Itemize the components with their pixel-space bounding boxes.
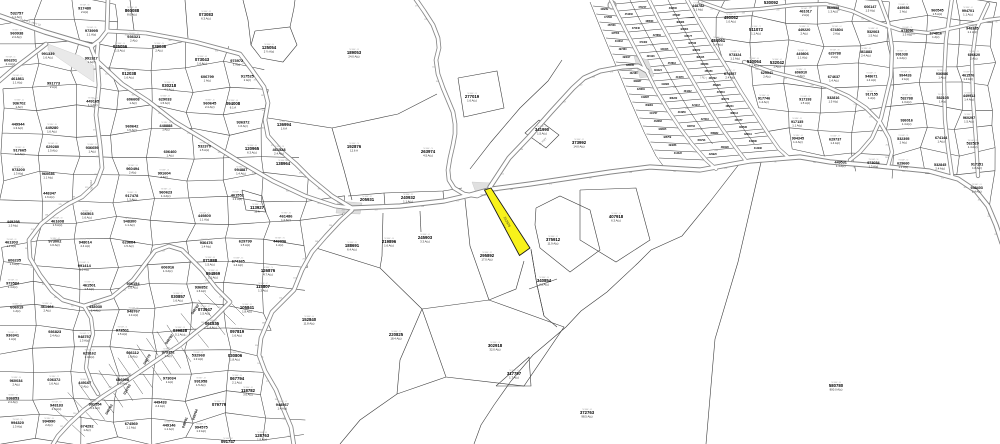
- svg-text:11.9 A(c): 11.9 A(c): [548, 242, 559, 246]
- svg-text:178: 178: [187, 133, 190, 135]
- svg-text:98: 98: [774, 161, 776, 163]
- svg-text:2.4 A(c): 2.4 A(c): [155, 404, 165, 408]
- svg-text:161: 161: [436, 81, 439, 83]
- svg-text:428411: 428411: [744, 133, 753, 136]
- svg-text:1.1 A(c): 1.1 A(c): [693, 8, 703, 12]
- svg-text:1.5 A(c): 1.5 A(c): [865, 9, 875, 13]
- svg-text:412422: 412422: [674, 152, 683, 155]
- svg-text:2 A(c): 2 A(c): [763, 75, 770, 79]
- svg-text:1.6 A(c): 1.6 A(c): [232, 334, 242, 338]
- svg-text:16 A: 16 A: [254, 210, 260, 214]
- svg-text:1.6 A(c): 1.6 A(c): [196, 289, 206, 293]
- svg-text:429605: 429605: [658, 128, 667, 131]
- svg-text:292: 292: [302, 258, 305, 260]
- svg-text:400: 400: [978, 200, 981, 202]
- svg-text:2.4 A(c): 2.4 A(c): [8, 400, 18, 404]
- svg-text:427216: 427216: [701, 118, 710, 121]
- svg-text:1 A(c): 1 A(c): [166, 380, 173, 384]
- svg-text:2 A(c): 2 A(c): [800, 32, 807, 36]
- svg-text:2.4 A(c): 2.4 A(c): [861, 54, 871, 58]
- svg-text:198: 198: [421, 206, 424, 208]
- svg-text:412296: 412296: [754, 147, 763, 150]
- svg-text:2.1 A(c): 2.1 A(c): [232, 381, 242, 385]
- svg-text:1.4 A(c): 1.4 A(c): [968, 145, 978, 149]
- svg-text:1.5 A(c): 1.5 A(c): [84, 287, 94, 291]
- svg-text:356: 356: [252, 172, 255, 174]
- svg-text:1.3 A(c): 1.3 A(c): [13, 425, 23, 429]
- svg-text:2 A(c): 2 A(c): [802, 13, 809, 17]
- svg-text:451636: 451636: [625, 13, 634, 16]
- svg-text:1.1 A(c): 1.1 A(c): [967, 30, 977, 34]
- svg-text:444956: 444956: [678, 111, 687, 114]
- svg-text:441005: 441005: [660, 48, 669, 51]
- svg-text:229: 229: [811, 85, 814, 87]
- svg-text:1.6 A(c): 1.6 A(c): [384, 244, 394, 248]
- svg-text:1.3 A(c): 1.3 A(c): [902, 32, 912, 36]
- svg-text:420126: 420126: [647, 55, 656, 58]
- svg-text:2 A(c): 2 A(c): [902, 77, 909, 81]
- svg-text:2 A(c): 2 A(c): [129, 170, 136, 174]
- svg-text:212: 212: [941, 177, 944, 179]
- svg-text:6.1 A: 6.1 A: [230, 106, 237, 110]
- svg-text:353: 353: [94, 174, 97, 176]
- svg-text:1.5 A(c): 1.5 A(c): [48, 149, 58, 153]
- svg-text:1.6 A(c): 1.6 A(c): [118, 381, 128, 385]
- svg-text:1.4 A(c): 1.4 A(c): [897, 56, 907, 60]
- svg-text:6.3 A(c): 6.3 A(c): [201, 17, 211, 21]
- svg-text:079779: 079779: [212, 402, 227, 407]
- svg-text:279: 279: [415, 5, 418, 7]
- svg-text:421804: 421804: [680, 28, 689, 31]
- svg-text:441577: 441577: [735, 119, 744, 122]
- svg-text:1 A(c): 1 A(c): [129, 101, 136, 105]
- svg-text:483083: 483083: [676, 21, 685, 24]
- svg-text:1.3 A(c): 1.3 A(c): [902, 100, 912, 104]
- svg-text:2 A(c): 2 A(c): [50, 85, 57, 89]
- svg-text:3.3 A(c): 3.3 A(c): [420, 240, 430, 244]
- svg-text:379: 379: [85, 187, 88, 189]
- svg-text:459150: 459150: [705, 70, 714, 73]
- svg-text:307: 307: [589, 177, 592, 179]
- svg-text:1.3 A(c): 1.3 A(c): [90, 406, 100, 410]
- svg-text:1.4 A(c): 1.4 A(c): [201, 244, 211, 248]
- svg-text:2.4 A(c): 2.4 A(c): [205, 105, 215, 109]
- svg-text:217: 217: [563, 101, 566, 103]
- svg-text:458882: 458882: [710, 132, 719, 135]
- svg-text:PINE RD: PINE RD: [89, 180, 94, 191]
- svg-text:1.1 A(c): 1.1 A(c): [125, 223, 135, 227]
- svg-text:411884: 411884: [661, 83, 670, 86]
- svg-text:1.4 A(c): 1.4 A(c): [759, 100, 769, 104]
- svg-text:1.5 A(c): 1.5 A(c): [127, 128, 137, 132]
- svg-text:1.1 A(c): 1.1 A(c): [730, 56, 740, 60]
- svg-text:112: 112: [184, 335, 187, 337]
- svg-text:83: 83: [862, 19, 864, 21]
- svg-text:1.5 A(c): 1.5 A(c): [800, 101, 810, 105]
- svg-text:200: 200: [776, 9, 779, 11]
- svg-text:1 A(c): 1 A(c): [868, 96, 875, 100]
- svg-text:414707: 414707: [649, 112, 658, 115]
- svg-text:1.3 A(c): 1.3 A(c): [193, 357, 203, 361]
- svg-text:256: 256: [109, 387, 112, 389]
- svg-text:1.4 A(c): 1.4 A(c): [236, 172, 246, 176]
- svg-text:1.6 A(c): 1.6 A(c): [238, 124, 248, 128]
- svg-text:414076: 414076: [676, 76, 685, 79]
- svg-text:1.5 A(c): 1.5 A(c): [118, 332, 128, 336]
- svg-text:338: 338: [742, 12, 745, 14]
- svg-text:1 A(c): 1 A(c): [162, 128, 169, 132]
- svg-text:1.6 A(c): 1.6 A(c): [124, 76, 134, 80]
- svg-text:86: 86: [318, 189, 320, 191]
- svg-text:1.4 A(c): 1.4 A(c): [829, 78, 839, 82]
- svg-text:420081: 420081: [637, 88, 646, 91]
- svg-text:1.4 A(c): 1.4 A(c): [233, 263, 243, 267]
- svg-text:125: 125: [128, 374, 131, 376]
- svg-text:1 A(c): 1 A(c): [166, 154, 173, 158]
- svg-text:423872: 423872: [692, 49, 701, 52]
- svg-text:1 A(c): 1 A(c): [13, 309, 20, 313]
- svg-text:459961: 459961: [645, 104, 654, 107]
- svg-text:1.5 A(c): 1.5 A(c): [240, 243, 250, 247]
- svg-text:1.4 A(c): 1.4 A(c): [129, 313, 139, 317]
- svg-text:188: 188: [188, 261, 191, 263]
- svg-text:1.5 A(c): 1.5 A(c): [537, 132, 547, 136]
- svg-text:298: 298: [315, 241, 318, 243]
- svg-text:421217: 421217: [692, 104, 701, 107]
- svg-text:12.6 A: 12.6 A: [350, 149, 358, 153]
- svg-text:103: 103: [257, 363, 260, 365]
- svg-text:149: 149: [813, 162, 816, 164]
- svg-text:133: 133: [162, 251, 165, 253]
- svg-text:495702: 495702: [687, 125, 696, 128]
- svg-text:322: 322: [262, 110, 265, 112]
- svg-text:94: 94: [25, 248, 27, 250]
- svg-text:269: 269: [254, 80, 257, 82]
- svg-text:1 A(c): 1 A(c): [233, 62, 240, 66]
- svg-text:273: 273: [266, 381, 269, 383]
- svg-text:32.0 A(c): 32.0 A(c): [489, 348, 500, 352]
- svg-text:157: 157: [375, 209, 378, 211]
- svg-text:1.3 A(c): 1.3 A(c): [963, 77, 973, 81]
- svg-text:1.5 A(c): 1.5 A(c): [205, 263, 215, 267]
- svg-text:1.4 A(c): 1.4 A(c): [964, 98, 974, 102]
- svg-text:1.4 A(c): 1.4 A(c): [830, 141, 840, 145]
- svg-text:1.6 A(c): 1.6 A(c): [82, 216, 92, 220]
- svg-text:1.4 A(c): 1.4 A(c): [161, 194, 171, 198]
- svg-text:290: 290: [73, 413, 76, 415]
- svg-text:1.5 A(c): 1.5 A(c): [196, 383, 206, 387]
- svg-text:481770: 481770: [721, 98, 730, 101]
- svg-text:1.4 A(c): 1.4 A(c): [836, 164, 846, 168]
- svg-text:1 A(c): 1 A(c): [276, 243, 283, 247]
- svg-text:2 A(c): 2 A(c): [833, 32, 840, 36]
- svg-text:1.1 A(c): 1.1 A(c): [126, 426, 136, 430]
- svg-text:1.5 A(c): 1.5 A(c): [8, 223, 18, 227]
- svg-text:1.4 A(c): 1.4 A(c): [793, 140, 803, 144]
- svg-text:1 A(c): 1 A(c): [83, 428, 90, 432]
- svg-text:1.3 A(c): 1.3 A(c): [127, 198, 137, 202]
- svg-text:112: 112: [432, 67, 435, 69]
- svg-text:1.1 A(c): 1.1 A(c): [403, 200, 413, 204]
- svg-text:101: 101: [880, 131, 883, 133]
- svg-text:1 A(c): 1 A(c): [939, 99, 946, 103]
- svg-text:387: 387: [942, 32, 945, 34]
- svg-text:2.4 A(c): 2.4 A(c): [6, 62, 16, 66]
- svg-text:427869: 427869: [653, 34, 662, 37]
- svg-text:1 A(c): 1 A(c): [773, 65, 780, 69]
- svg-text:458325: 458325: [713, 84, 722, 87]
- svg-text:212: 212: [105, 74, 108, 76]
- svg-text:252: 252: [31, 229, 34, 231]
- svg-text:390: 390: [299, 172, 302, 174]
- svg-text:1.1 A(c): 1.1 A(c): [200, 218, 210, 222]
- svg-text:1.6 A(c): 1.6 A(c): [197, 62, 207, 66]
- svg-text:3.0 A(c): 3.0 A(c): [243, 393, 253, 397]
- svg-text:800.0 A(c): 800.0 A(c): [830, 388, 843, 392]
- svg-text:282: 282: [510, 189, 513, 191]
- svg-text:1.4 A(c): 1.4 A(c): [866, 78, 876, 82]
- svg-text:428252: 428252: [600, 8, 609, 11]
- svg-text:4.2 A(c): 4.2 A(c): [539, 283, 549, 287]
- svg-text:1.5 A(c): 1.5 A(c): [828, 100, 838, 104]
- svg-text:11.8 A(c): 11.8 A(c): [304, 322, 315, 326]
- svg-text:1.6 A(c): 1.6 A(c): [47, 129, 57, 133]
- svg-text:1.4 A(c): 1.4 A(c): [207, 326, 217, 330]
- svg-text:497360: 497360: [619, 48, 628, 51]
- svg-text:1 A(c): 1 A(c): [938, 75, 945, 79]
- svg-text:372: 372: [123, 290, 126, 292]
- svg-text:444480: 444480: [749, 140, 758, 143]
- svg-text:339: 339: [93, 69, 96, 71]
- svg-text:1.5 A(c): 1.5 A(c): [124, 244, 134, 248]
- svg-text:2.4 A(c): 2.4 A(c): [12, 35, 22, 39]
- svg-text:14.0 A(c): 14.0 A(c): [573, 145, 584, 149]
- svg-text:474727: 474727: [638, 6, 647, 9]
- svg-text:484536: 484536: [739, 126, 748, 129]
- svg-text:148: 148: [629, 172, 632, 174]
- svg-text:1.6 A: 1.6 A: [281, 127, 288, 131]
- svg-text:295: 295: [994, 234, 997, 236]
- svg-text:1.6 A(c): 1.6 A(c): [49, 381, 59, 385]
- svg-text:2 A(c): 2 A(c): [831, 55, 838, 59]
- svg-text:96: 96: [995, 21, 997, 23]
- svg-text:494345: 494345: [696, 56, 705, 59]
- svg-text:2.4 A(c): 2.4 A(c): [52, 407, 62, 411]
- svg-text:1.6 A(c): 1.6 A(c): [53, 223, 63, 227]
- svg-text:2 A(c): 2 A(c): [900, 10, 907, 14]
- svg-text:181: 181: [755, 69, 758, 71]
- svg-text:471582: 471582: [604, 16, 613, 19]
- svg-text:1.4 A(c): 1.4 A(c): [85, 355, 95, 359]
- svg-text:469987: 469987: [633, 80, 642, 83]
- svg-text:1.7 A(c): 1.7 A(c): [509, 376, 519, 380]
- svg-text:320: 320: [218, 152, 221, 154]
- svg-text:1 A(c): 1 A(c): [797, 74, 804, 78]
- svg-text:424546: 424546: [688, 42, 697, 45]
- svg-text:449792: 449792: [709, 77, 718, 80]
- svg-text:400: 400: [262, 128, 265, 130]
- svg-text:426165: 426165: [626, 64, 635, 67]
- svg-text:1 A(c): 1 A(c): [932, 35, 939, 39]
- svg-text:6.3 A(c): 6.3 A(c): [247, 151, 257, 155]
- svg-text:471362: 471362: [639, 41, 648, 44]
- svg-text:486244: 486244: [726, 105, 735, 108]
- svg-text:267: 267: [673, 171, 676, 173]
- svg-text:163: 163: [54, 297, 57, 299]
- svg-text:1.4 A(c): 1.4 A(c): [281, 218, 291, 222]
- svg-text:298: 298: [629, 69, 632, 71]
- svg-text:230: 230: [329, 225, 332, 227]
- svg-text:382: 382: [483, 195, 486, 197]
- svg-text:1.5 A(c): 1.5 A(c): [933, 12, 943, 16]
- svg-text:259: 259: [96, 156, 99, 158]
- svg-text:1.8 A(c): 1.8 A(c): [257, 438, 267, 442]
- svg-text:101: 101: [501, 173, 504, 175]
- svg-text:2.4 A(c): 2.4 A(c): [725, 76, 735, 80]
- svg-text:447553: 447553: [611, 32, 620, 35]
- svg-text:1.3 A(c): 1.3 A(c): [869, 164, 879, 168]
- svg-text:1.4 A(c): 1.4 A(c): [8, 285, 18, 289]
- svg-text:1.1 A(c): 1.1 A(c): [798, 56, 808, 60]
- svg-text:477937: 477937: [672, 14, 681, 17]
- svg-text:091747: 091747: [221, 439, 236, 444]
- svg-text:2 A(c): 2 A(c): [45, 423, 52, 427]
- svg-text:157: 157: [60, 426, 63, 428]
- svg-text:333: 333: [853, 166, 856, 168]
- svg-text:432180: 432180: [630, 72, 639, 75]
- svg-text:1.1 A(c): 1.1 A(c): [13, 80, 23, 84]
- svg-text:1.1 A(c): 1.1 A(c): [792, 123, 802, 127]
- svg-text:159: 159: [869, 116, 872, 118]
- svg-text:2.4 A(c): 2.4 A(c): [972, 190, 982, 194]
- svg-text:2 A(c): 2 A(c): [12, 382, 19, 386]
- svg-text:1.1 A(c): 1.1 A(c): [43, 176, 53, 180]
- svg-text:1.3 A(c): 1.3 A(c): [258, 289, 268, 293]
- svg-text:447177: 447177: [684, 35, 693, 38]
- svg-text:214: 214: [854, 104, 857, 106]
- svg-text:17.0 A(c): 17.0 A(c): [481, 258, 492, 262]
- svg-text:8.0 A(c): 8.0 A(c): [127, 13, 137, 17]
- svg-text:1.3 A(c): 1.3 A(c): [15, 152, 25, 156]
- svg-text:205931: 205931: [360, 197, 375, 202]
- svg-text:362: 362: [288, 436, 291, 438]
- svg-text:1.1 A(c): 1.1 A(c): [898, 165, 908, 169]
- svg-text:2.4 A(c): 2.4 A(c): [80, 244, 90, 248]
- svg-text:1.5 A(c): 1.5 A(c): [200, 312, 210, 316]
- svg-text:1.1 A(c): 1.1 A(c): [7, 244, 17, 248]
- svg-text:98.5 A(c): 98.5 A(c): [581, 415, 592, 419]
- svg-text:530092: 530092: [764, 0, 779, 5]
- svg-text:1.1 A(c): 1.1 A(c): [164, 427, 174, 431]
- svg-text:466232: 466232: [669, 97, 678, 100]
- svg-text:87: 87: [425, 19, 427, 21]
- svg-text:1.1 A(c): 1.1 A(c): [963, 12, 973, 16]
- svg-text:1.6 A(c): 1.6 A(c): [467, 99, 477, 103]
- svg-text:135: 135: [912, 34, 915, 36]
- svg-text:1.5 A(c): 1.5 A(c): [868, 34, 878, 38]
- svg-text:379: 379: [59, 204, 62, 206]
- svg-text:371: 371: [145, 267, 148, 269]
- svg-text:223: 223: [31, 267, 34, 269]
- svg-text:2 A(c): 2 A(c): [970, 57, 977, 61]
- svg-text:389: 389: [261, 95, 264, 97]
- svg-text:2 A(c): 2 A(c): [155, 49, 162, 53]
- svg-text:90: 90: [343, 212, 345, 214]
- svg-text:470046: 470046: [632, 27, 641, 30]
- svg-text:358: 358: [215, 50, 218, 52]
- svg-text:1.1 A(c): 1.1 A(c): [88, 103, 98, 107]
- svg-text:191: 191: [902, 171, 905, 173]
- svg-text:198: 198: [45, 214, 48, 216]
- svg-text:199: 199: [158, 113, 161, 115]
- svg-text:303: 303: [964, 187, 967, 189]
- svg-text:278: 278: [610, 71, 613, 73]
- svg-text:5.1 A(c): 5.1 A(c): [175, 333, 185, 337]
- svg-text:383: 383: [168, 40, 171, 42]
- svg-text:1.5 A(c): 1.5 A(c): [79, 267, 89, 271]
- svg-text:373: 373: [93, 129, 96, 131]
- svg-text:24.0 A(c): 24.0 A(c): [348, 55, 359, 59]
- svg-text:1.6 A(c): 1.6 A(c): [972, 166, 982, 170]
- svg-text:1.6 A(c): 1.6 A(c): [45, 195, 55, 199]
- svg-text:2 A(c): 2 A(c): [81, 384, 88, 388]
- svg-text:1.5 A(c): 1.5 A(c): [115, 49, 125, 53]
- svg-text:1 A(c): 1 A(c): [9, 337, 16, 341]
- svg-text:249: 249: [282, 418, 285, 420]
- svg-text:323: 323: [317, 203, 320, 205]
- svg-text:488500: 488500: [645, 20, 654, 23]
- svg-text:2 A(c): 2 A(c): [43, 309, 50, 313]
- svg-text:1.6 A(c): 1.6 A(c): [173, 299, 183, 303]
- svg-text:394: 394: [255, 345, 258, 347]
- svg-text:1.3 A(c): 1.3 A(c): [232, 197, 242, 201]
- svg-text:373: 373: [205, 280, 208, 282]
- svg-text:1 A(c): 1 A(c): [88, 60, 95, 64]
- svg-text:102: 102: [279, 298, 282, 300]
- svg-text:2.4 A(c): 2.4 A(c): [935, 166, 945, 170]
- svg-text:1.6 A(c): 1.6 A(c): [43, 56, 53, 60]
- svg-text:1.4 A(c): 1.4 A(c): [902, 122, 912, 126]
- svg-text:1.5 A(c): 1.5 A(c): [200, 148, 210, 152]
- svg-text:1 A(c): 1 A(c): [204, 78, 211, 82]
- svg-text:1.1 A(c): 1.1 A(c): [208, 276, 218, 280]
- svg-text:392: 392: [834, 93, 837, 95]
- svg-text:1 A(c): 1 A(c): [164, 354, 171, 358]
- svg-text:1 A(c): 1 A(c): [88, 149, 95, 153]
- svg-text:435759: 435759: [663, 136, 672, 139]
- svg-text:468112: 468112: [730, 112, 739, 115]
- svg-text:146: 146: [242, 63, 245, 65]
- svg-text:18.4 A(c): 18.4 A(c): [390, 337, 401, 341]
- svg-text:322: 322: [579, 85, 582, 87]
- svg-text:320: 320: [339, 204, 342, 206]
- svg-text:2 A(c): 2 A(c): [161, 175, 168, 179]
- svg-text:2.4 A(c): 2.4 A(c): [274, 151, 284, 155]
- svg-text:419687: 419687: [641, 96, 650, 99]
- svg-text:1.1 A(c): 1.1 A(c): [87, 33, 97, 37]
- svg-text:494956: 494956: [668, 144, 677, 147]
- svg-text:2.4 A(c): 2.4 A(c): [91, 308, 101, 312]
- svg-text:1.3 A(c): 1.3 A(c): [163, 269, 173, 273]
- svg-text:1.1 A(c): 1.1 A(c): [751, 32, 761, 36]
- svg-text:234: 234: [987, 216, 990, 218]
- svg-text:1.4 A(c): 1.4 A(c): [713, 43, 723, 47]
- svg-text:216: 216: [219, 296, 222, 298]
- svg-text:472610: 472610: [717, 91, 726, 94]
- svg-text:6.3 A(c): 6.3 A(c): [611, 219, 621, 223]
- svg-text:2 A(c): 2 A(c): [130, 39, 137, 43]
- svg-text:1.3 A(c): 1.3 A(c): [13, 126, 23, 130]
